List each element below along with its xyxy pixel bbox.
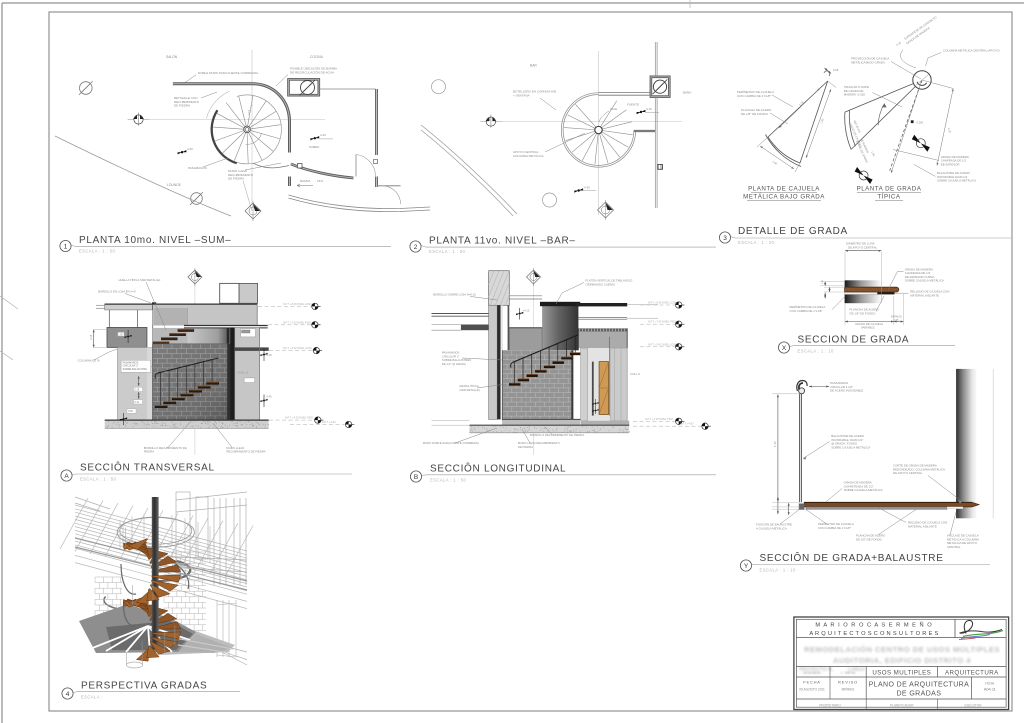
svg-text:0.05: 0.05 [894, 319, 899, 322]
svg-text:B: B [414, 474, 418, 481]
svg-text:3.18: 3.18 [247, 109, 251, 115]
svg-text:SECCIÔN LONGITUDINAL: SECCIÔN LONGITUDINAL [430, 462, 566, 475]
svg-text:ESCALA : 1 : 10: ESCALA : 1 : 10 [798, 349, 835, 354]
svg-text:N.P.T. +7.00 NIVEL PISO: N.P.T. +7.00 NIVEL PISO [648, 321, 676, 324]
svg-text:PLANO DE ARQUITECTURA: PLANO DE ARQUITECTURA [869, 682, 970, 689]
svg-text:RECUBRIMIENTO DE PIEDRA: RECUBRIMIENTO DE PIEDRA [226, 450, 265, 454]
svg-text:BORDILLO RECUBRIMIENTO DE PIED: BORDILLO RECUBRIMIENTO DE PIEDRA [530, 433, 584, 437]
svg-text:(TERMINADO CUERO): (TERMINADO CUERO) [585, 282, 615, 286]
svg-text:DE APOYO CENTRAL: DE APOYO CENTRAL [893, 471, 923, 475]
svg-text:(VER DETALLE): (VER DETALLE) [459, 388, 480, 392]
svg-text:METÁLICA BAJO GRADA: METÁLICA BAJO GRADA [743, 194, 825, 201]
svg-text:SALE: SALE [610, 107, 617, 111]
svg-text:HOJA: HOJA [985, 682, 995, 686]
svg-text:A: A [64, 473, 69, 480]
svg-text:- AGENDA -: - AGENDA - [801, 670, 823, 675]
svg-text:A CAJUELA METÁLICA: A CAJUELA METÁLICA [756, 526, 787, 530]
svg-text:MATERIAL AISLANTE: MATERIAL AISLANTE [908, 524, 937, 528]
svg-text:2.08: 2.08 [267, 353, 273, 357]
svg-text:COLUMNA METÁLICA: COLUMNA METÁLICA [513, 154, 544, 158]
svg-text:MRM/ES: MRM/ES [842, 688, 855, 692]
svg-text:MATERIAL AISLANTE: MATERIAL AISLANTE [910, 293, 939, 297]
svg-text:SOBRE CAJUELA METÁLICA: SOBRE CAJUELA METÁLICA [844, 488, 883, 492]
svg-text:N.P.T. +4.00: N.P.T. +4.00 [680, 423, 694, 426]
svg-text:DOBLE MURO PARA FUENTE CORREDI: DOBLE MURO PARA FUENTE CORREDIZA [198, 71, 258, 75]
svg-text:EJECUTOR: EJECUTOR [964, 704, 982, 708]
svg-text:N.P.T. +5.62 NIVEL LOSA: N.P.T. +5.62 NIVEL LOSA [283, 347, 312, 350]
svg-text:N.P.T. +5.62 NIVEL LOSA: N.P.T. +5.62 NIVEL LOSA [648, 343, 677, 346]
svg-text:DE 1/2" @ GRADA: DE 1/2" @ GRADA [442, 362, 466, 366]
svg-text:DE ESPESOR: DE ESPESOR [941, 162, 960, 166]
svg-text:DE APOYO CENTRAL: DE APOYO CENTRAL [848, 245, 878, 249]
svg-text:CENTRAL: CENTRAL [947, 545, 961, 549]
svg-text:2: 2 [414, 244, 418, 251]
svg-text:ESCALA :: ESCALA : [81, 695, 103, 700]
svg-text:COLUMNA DE Ts: COLUMNA DE Ts [78, 359, 101, 363]
svg-text:CON CAMBIA DE 1"x1/8": CON CAMBIA DE 1"x1/8" [818, 526, 851, 530]
svg-text:MURO DOBLE PARA FUENTE CORREDI: MURO DOBLE PARA FUENTE CORREDIZA [423, 441, 479, 445]
svg-text:M A R I O R O C A S E R M E: M A R I O R O C A S E R M E Ñ O [815, 622, 932, 629]
svg-text:SUBEN: SUBEN [309, 145, 319, 149]
svg-text:PLANTA DE CAJUELA: PLANTA DE CAJUELA [748, 186, 820, 193]
svg-text:4.40: 4.40 [320, 133, 326, 137]
svg-text:CON CAMBIA DE 1"x1/8": CON CAMBIA DE 1"x1/8" [790, 309, 823, 313]
svg-text:4.30: 4.30 [187, 147, 193, 151]
svg-text:05 AGOSTO 2011: 05 AGOSTO 2011 [799, 688, 825, 692]
svg-text:BORDILLO SOBRE LOSA H=0.10: BORDILLO SOBRE LOSA H=0.10 [433, 292, 476, 296]
svg-text:FUENTE: FUENTE [627, 103, 639, 107]
svg-text:ARQUITECTURA: ARQUITECTURA [945, 669, 999, 676]
svg-text:0.40: 0.40 [267, 395, 273, 399]
svg-text:SECCIÔN DE GRADA+BALAUSTRE: SECCIÔN DE GRADA+BALAUSTRE [760, 551, 944, 564]
svg-text:2.16: 2.16 [89, 334, 93, 340]
svg-text:SECCIÔN TRANSVERSAL: SECCIÔN TRANSVERSAL [80, 461, 215, 474]
svg-text:COCINA: COCINA [310, 55, 324, 59]
svg-text:DE 1/8" DE FONDO: DE 1/8" DE FONDO [741, 112, 769, 116]
svg-text:SALÓN: SALÓN [166, 54, 178, 59]
svg-text:PLANIFICADOR: PLANIFICADOR [890, 704, 914, 708]
svg-text:BAÑO: BAÑO [683, 90, 692, 95]
svg-text:REVISO: REVISO [838, 680, 858, 685]
svg-text:4: 4 [66, 691, 70, 698]
svg-text:DE ACERO INOXIDABLE: DE ACERO INOXIDABLE [830, 389, 863, 393]
svg-text:N.P.T. +4.00: N.P.T. +4.00 [322, 421, 336, 424]
svg-text:PIEDRA: PIEDRA [144, 450, 155, 454]
svg-text:DE RECIRCULACIÓN DE AGUA: DE RECIRCULACIÓN DE AGUA [290, 69, 334, 74]
svg-text:NIVEL 11: NIVEL 11 [630, 373, 641, 376]
svg-text:SOBRE CAJUELA METÁLICA: SOBRE CAJUELA METÁLICA [831, 446, 870, 450]
svg-text:I. TAPIA: I. TAPIA [841, 670, 856, 675]
svg-text:1.10: 1.10 [773, 441, 777, 447]
svg-text:PERSPECTIVA GRADAS: PERSPECTIVA GRADAS [81, 681, 207, 692]
svg-text:REMODELACIÓN CENTRO DE USOS MÚ: REMODELACIÓN CENTRO DE USOS MÚLTIPLES [804, 645, 1000, 654]
svg-text:DE 1/8" DE FONDO: DE 1/8" DE FONDO [856, 537, 883, 541]
svg-text:AUDITORIA, EDIFICIO DISTRITO 4: AUDITORIA, EDIFICIO DISTRITO 4 [833, 656, 971, 665]
svg-text:1: 1 [64, 244, 68, 251]
svg-text:DE 1/8" DE FONDO: DE 1/8" DE FONDO [850, 312, 877, 316]
svg-text:4.30: 4.30 [584, 186, 590, 190]
svg-text:X: X [782, 345, 787, 352]
svg-text:Y: Y [744, 563, 749, 570]
svg-text:SOBRE CAJUELA METÁLICA: SOBRE CAJUELA METÁLICA [937, 179, 976, 183]
svg-text:HUELLA TÍPICA (VER DETALLE): HUELLA TÍPICA (VER DETALLE) [119, 278, 161, 282]
svg-text:BORDILLO EN LOSA EN V=0: BORDILLO EN LOSA EN V=0 [98, 290, 136, 294]
svg-text:4.15: 4.15 [646, 107, 652, 111]
svg-text:DE PIEDRA: DE PIEDRA [518, 445, 533, 449]
svg-text:DE PIEDRA: DE PIEDRA [228, 177, 244, 181]
svg-text:LOUNGE: LOUNGE [167, 183, 182, 187]
svg-text:N.P.T. +4.15 NIVEL PISO: N.P.T. +4.15 NIVEL PISO [645, 418, 673, 421]
svg-text:0.11: 0.11 [135, 401, 140, 404]
svg-text:BAR: BAR [530, 64, 537, 68]
svg-text:DETALLE DE GRADA: DETALLE DE GRADA [738, 226, 848, 237]
svg-text:NIVEL 10: NIVEL 10 [238, 372, 249, 375]
svg-text:FECHA: FECHA [803, 680, 821, 685]
svg-text:N.P.T. +7.00 NIVEL PISO: N.P.T. +7.00 NIVEL PISO [283, 321, 311, 324]
svg-text:0.18: 0.18 [135, 389, 140, 392]
svg-text:METÁLICA BAJO GRADA: METÁLICA BAJO GRADA [851, 60, 885, 64]
svg-text:PLANTA 10mo. NIVEL –SUM–: PLANTA 10mo. NIVEL –SUM– [79, 235, 231, 246]
svg-text:+4.15: +4.15 [523, 309, 530, 313]
svg-text:15%: 15% [317, 179, 323, 183]
svg-text:ESCALA : 1 : 50: ESCALA : 1 : 50 [429, 249, 466, 254]
svg-text:3: 3 [723, 235, 727, 242]
svg-text:A04-11: A04-11 [984, 688, 996, 692]
svg-text:N.P.T. +8.08 NIVEL LOSA: N.P.T. +8.08 NIVEL LOSA [283, 303, 312, 306]
svg-text:SOBRE BALAUSTRE: SOBRE BALAUSTRE [123, 368, 148, 371]
svg-text:ESCALA : 1 : 50: ESCALA : 1 : 50 [430, 478, 467, 483]
svg-text:DE GRADAS: DE GRADAS [896, 691, 941, 698]
svg-text:N.P.T. +8.08 NIVEL LOSA: N.P.T. +8.08 NIVEL LOSA [648, 302, 677, 305]
svg-text:ESCALA : 1 : 50: ESCALA : 1 : 50 [79, 249, 116, 254]
svg-text:SECCION DE GRADA: SECCION DE GRADA [798, 334, 910, 345]
svg-text:0.90: 0.90 [128, 410, 133, 413]
svg-text:CON CAMBIA DE 1"x1/8": CON CAMBIA DE 1"x1/8" [737, 94, 771, 98]
svg-text:MADERA -0.028: MADERA -0.028 [844, 93, 866, 97]
svg-text:PROPIETARIO: PROPIETARIO [819, 704, 841, 708]
svg-text:A R Q U I T E C T O S C O: A R Q U I T E C T O S C O N S U L T O R … [809, 631, 938, 637]
svg-text:ESCALA : 1 : 20: ESCALA : 1 : 20 [738, 240, 775, 245]
svg-text:COLUMNA METÁLICA CENTRAL (APOY: COLUMNA METÁLICA CENTRAL (APOYO) [943, 49, 1000, 53]
svg-text:1.20: 1.20 [118, 334, 123, 336]
svg-text:VARIABLE: VARIABLE [861, 325, 875, 329]
svg-text:+ VENTANA: + VENTANA [513, 93, 530, 97]
svg-text:SOBRE CAJUELA METÁLICA: SOBRE CAJUELA METÁLICA [905, 279, 944, 283]
svg-text:ESCALA : 1 : 50: ESCALA : 1 : 50 [80, 477, 117, 482]
svg-text:N.P.T. +4.15 NIVEL PISO: N.P.T. +4.15 NIVEL PISO [285, 417, 313, 420]
svg-text:RAMPA: RAMPA [300, 179, 310, 183]
svg-text:0.08: 0.08 [833, 68, 839, 72]
svg-text:TÍPICA: TÍPICA [878, 194, 901, 201]
svg-text:PLANTA DE GRADA: PLANTA DE GRADA [857, 186, 922, 193]
svg-text:0.265: 0.265 [917, 121, 924, 125]
svg-text:ESCALA : 1 : 10: ESCALA : 1 : 10 [760, 568, 797, 573]
svg-text:USOS MULTIPLES: USOS MULTIPLES [872, 669, 931, 676]
svg-text:DE PIEDRA: DE PIEDRA [174, 104, 190, 108]
svg-text:PLANTA 11vo. NIVEL –BAR–: PLANTA 11vo. NIVEL –BAR– [429, 236, 576, 247]
